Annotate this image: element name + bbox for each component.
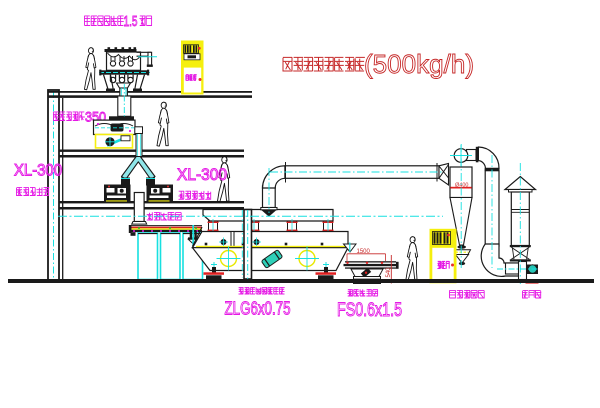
svg-text:Ø400: Ø400	[455, 182, 468, 188]
svg-text:540: 540	[386, 267, 392, 278]
svg-text:FS0.6x1.5: FS0.6x1.5	[337, 299, 402, 321]
svg-text:1500: 1500	[357, 249, 371, 255]
svg-text:XL-300: XL-300	[177, 166, 227, 184]
svg-text:XL-300: XL-300	[14, 162, 62, 180]
svg-text:(500kg/h): (500kg/h)	[364, 49, 474, 79]
svg-text:1.5: 1.5	[124, 14, 138, 30]
svg-text:ZLG6x0.75: ZLG6x0.75	[225, 299, 291, 319]
